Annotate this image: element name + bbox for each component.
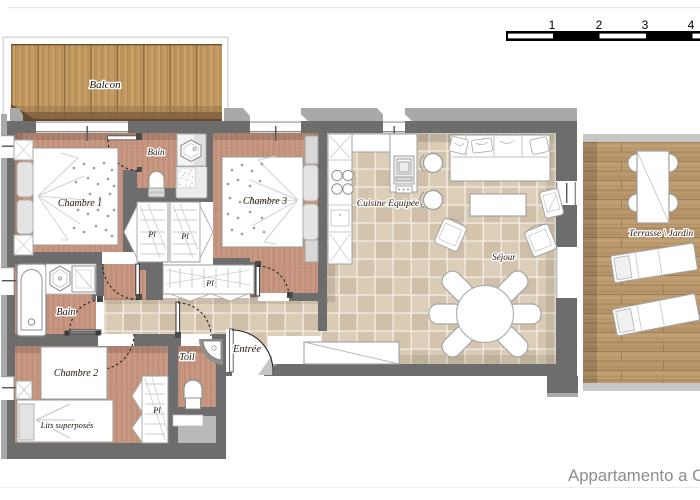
svg-text:Pl: Pl xyxy=(180,231,189,241)
svg-text:Terrasse \ Jardin: Terrasse \ Jardin xyxy=(629,229,693,239)
svg-text:Pl: Pl xyxy=(205,278,214,288)
svg-text:Chambre 2: Chambre 2 xyxy=(54,368,98,379)
svg-text:Bain: Bain xyxy=(148,147,165,157)
svg-text:Entrée: Entrée xyxy=(232,344,261,355)
svg-text:Chambre 3: Chambre 3 xyxy=(243,196,287,207)
svg-text:Cuisine Equipée: Cuisine Equipée xyxy=(357,199,420,209)
svg-text:Appartamento a Chamonix: Appartamento a Chamonix xyxy=(568,466,700,485)
svg-text:4: 4 xyxy=(688,18,695,32)
svg-text:Séjour: Séjour xyxy=(492,252,516,262)
svg-text:1: 1 xyxy=(549,18,556,32)
svg-text:Lits superposés: Lits superposés xyxy=(40,420,94,430)
svg-text:2: 2 xyxy=(596,18,603,32)
svg-text:Pl: Pl xyxy=(147,229,156,239)
svg-text:Pl: Pl xyxy=(152,405,161,415)
svg-text:3: 3 xyxy=(642,18,649,32)
svg-text:Bain: Bain xyxy=(57,307,76,318)
svg-text:Balcon: Balcon xyxy=(89,79,121,91)
svg-text:Toil: Toil xyxy=(179,352,194,363)
svg-text:Chambre 1: Chambre 1 xyxy=(58,198,102,209)
